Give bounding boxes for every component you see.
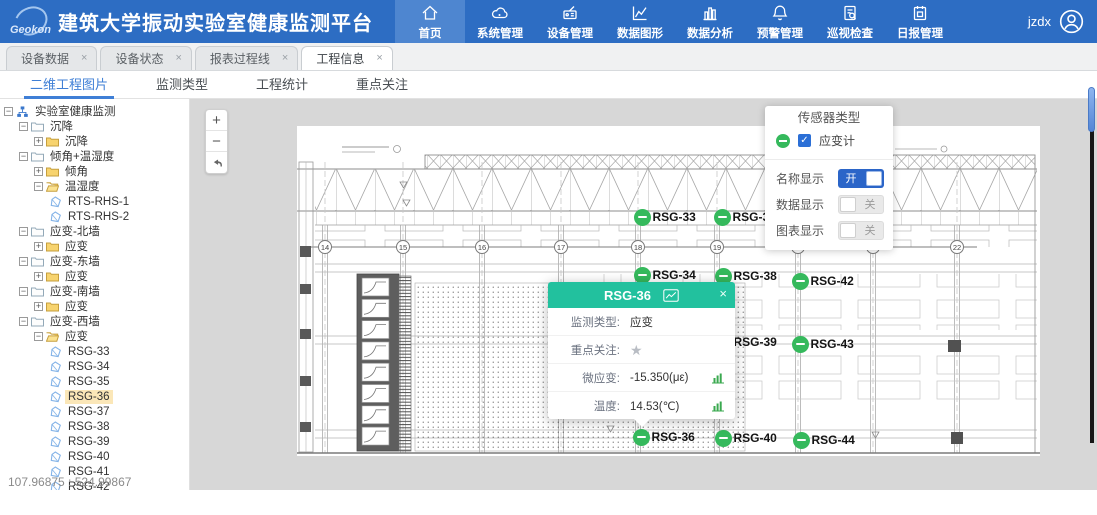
nav-item-数据图形[interactable]: 数据图形 <box>605 0 675 43</box>
folder-outline-icon <box>31 316 44 328</box>
nav-item-日报管理[interactable]: 日报管理 <box>885 0 955 43</box>
device-icon <box>560 3 580 23</box>
folder-outline-icon <box>31 226 44 238</box>
sensor-marker-RSG-44[interactable]: RSG-44 <box>793 432 855 449</box>
toggle-knob[interactable] <box>866 171 882 186</box>
tree-item-label: 倾角 <box>62 165 91 179</box>
sensor-marker-label: RSG-36 <box>652 430 695 444</box>
open-tabs-bar: 设备数据×设备状态×报表过程线×工程信息× <box>0 43 1097 71</box>
folder-outline-icon <box>31 256 44 268</box>
tree-item-RSG-35[interactable]: RSG-35 <box>0 374 189 389</box>
tab-label: 设备数据 <box>21 50 69 67</box>
close-icon[interactable]: × <box>282 53 288 64</box>
collapse-icon[interactable]: − <box>19 257 28 266</box>
tree-item-label: RSG-40 <box>65 450 113 464</box>
popup-row: 重点关注:★ <box>548 335 735 363</box>
sensor-marker-label: RSG-42 <box>811 274 854 288</box>
nav-item-首页[interactable]: 首页 <box>395 0 465 43</box>
tree-item-RTS-RHS-2[interactable]: RTS-RHS-2 <box>0 209 189 224</box>
tab-设备状态[interactable]: 设备状态× <box>100 46 191 70</box>
sensor-marker-RSG-36[interactable]: RSG-36 <box>633 429 695 446</box>
grid-axis-bubble-17: 17 <box>554 240 568 254</box>
sensor-icon <box>49 421 62 433</box>
tab-label: 工程信息 <box>316 50 364 67</box>
toggle-图表显示[interactable]: 关 <box>838 221 884 240</box>
sensor-tree-panel: −实验室健康监测−沉降+沉降−倾角+温湿度+倾角−温湿度RTS-RHS-1RTS… <box>0 99 190 490</box>
toggle-row-图表显示: 图表显示关 <box>765 217 893 243</box>
popup-row-label: 微应变: <box>548 370 620 386</box>
toggle-state-text: 开 <box>838 170 864 186</box>
expand-icon[interactable]: + <box>34 137 43 146</box>
tree-item-RSG-37[interactable]: RSG-37 <box>0 404 189 419</box>
folder-outline-icon <box>31 286 44 298</box>
tree-item-label: 应变 <box>62 270 91 284</box>
nav-label: 日报管理 <box>897 25 943 41</box>
expand-icon[interactable]: + <box>34 302 43 311</box>
collapse-icon[interactable]: − <box>19 287 28 296</box>
tab-工程信息[interactable]: 工程信息× <box>301 46 392 70</box>
sensor-marker-label: RSG-40 <box>734 431 777 445</box>
tree-item-label: RSG-37 <box>65 405 113 419</box>
collapse-icon[interactable]: − <box>19 152 28 161</box>
tree-item-应变-西墙[interactable]: −应变-西墙 <box>0 314 189 329</box>
sensor-icon <box>49 376 62 388</box>
green-minus-circle-icon[interactable] <box>714 209 731 226</box>
green-minus-circle-icon <box>776 134 790 148</box>
tree-item-RSG-33[interactable]: RSG-33 <box>0 344 189 359</box>
folder-icon <box>46 271 59 283</box>
popup-row-label: 温度: <box>548 398 620 414</box>
toggle-row-名称显示: 名称显示开 <box>765 165 893 191</box>
tree-item-label: RSG-35 <box>65 375 113 389</box>
toggle-名称显示[interactable]: 开 <box>838 169 884 188</box>
sensor-icon <box>49 391 62 403</box>
drawing-canvas[interactable]: 141516171819202122 RSG-33RSG-37RSG-41RSG… <box>297 126 1040 456</box>
sensor-icon <box>49 406 62 418</box>
sensor-marker-label: RSG-43 <box>811 337 854 351</box>
zoom-in-button[interactable]: + <box>206 110 227 131</box>
value-chart-icon[interactable] <box>711 400 725 412</box>
tree-item-应变[interactable]: +应变 <box>0 239 189 254</box>
nav-label: 系统管理 <box>477 25 523 41</box>
app-logo: Geokon <box>10 6 52 38</box>
sensor-icon <box>49 436 62 448</box>
sensor-icon <box>49 196 62 208</box>
sensor-marker-RSG-40[interactable]: RSG-40 <box>715 430 777 447</box>
nav-label: 设备管理 <box>547 25 593 41</box>
sensor-marker-label: RSG-39 <box>734 335 777 349</box>
subtab-二维工程图片[interactable]: 二维工程图片 <box>30 71 108 99</box>
user-name: jzdx <box>1028 14 1051 29</box>
nav-label: 数据分析 <box>687 25 733 41</box>
popup-row: 微应变:-15.350(με) <box>548 363 735 391</box>
nav-item-预警管理[interactable]: 预警管理 <box>745 0 815 43</box>
main-nav: 首页系统管理设备管理数据图形数据分析预警管理巡视检查日报管理 <box>395 0 955 43</box>
tree-item-RSG-34[interactable]: RSG-34 <box>0 359 189 374</box>
sensor-marker-RSG-33[interactable]: RSG-33 <box>634 209 696 226</box>
sensor-popup-header: RSG-36 × <box>548 282 735 308</box>
popup-row-value: 14.53(℃) <box>630 399 679 413</box>
data-graph-icon <box>630 3 650 23</box>
value-chart-icon[interactable] <box>711 372 725 384</box>
popup-row: 温度:14.53(℃) <box>548 391 735 419</box>
folder-icon <box>46 166 59 178</box>
toggle-数据显示[interactable]: 关 <box>838 195 884 214</box>
tree-item-label: 应变 <box>62 240 91 254</box>
tree-item-label: 应变 <box>62 300 91 314</box>
page-scrollbar[interactable] <box>1088 87 1095 132</box>
nav-item-设备管理[interactable]: 设备管理 <box>535 0 605 43</box>
strain-gauge-checkbox[interactable]: ✓ <box>798 134 811 147</box>
grid-axis-bubble-22: 22 <box>950 240 964 254</box>
tree-item-label: 应变-北墙 <box>47 225 103 239</box>
sensor-marker-label: RSG-38 <box>734 269 777 283</box>
close-icon[interactable]: × <box>376 53 382 64</box>
app-title: 建筑大学振动实验室健康监测平台 <box>58 7 373 36</box>
tree-item-label: 应变-东墙 <box>47 255 103 269</box>
alert-bell-icon <box>770 3 790 23</box>
tree-item-RSG-36[interactable]: RSG-36 <box>0 389 189 404</box>
green-minus-circle-icon[interactable] <box>792 273 809 290</box>
tab-设备数据[interactable]: 设备数据× <box>6 46 97 70</box>
tree-item-应变[interactable]: +应变 <box>0 269 189 284</box>
subtab-监测类型[interactable]: 监测类型 <box>156 71 208 99</box>
sensor-marker-label: RSG-33 <box>653 210 696 224</box>
nav-label: 预警管理 <box>757 25 803 41</box>
user-avatar-icon[interactable] <box>1058 8 1085 35</box>
sensor-icon <box>49 451 62 463</box>
nav-item-数据分析[interactable]: 数据分析 <box>675 0 745 43</box>
org-icon <box>16 106 29 118</box>
tree-item-应变-南墙[interactable]: −应变-南墙 <box>0 284 189 299</box>
tree-item-RSG-40[interactable]: RSG-40 <box>0 449 189 464</box>
app-page: Geokon 建筑大学振动实验室健康监测平台 首页系统管理设备管理数据图形数据分… <box>0 0 1097 515</box>
green-minus-circle-icon[interactable] <box>634 267 651 284</box>
toggle-row-数据显示: 数据显示关 <box>765 191 893 217</box>
sensor-panel-title: 传感器类型 <box>765 106 893 128</box>
popup-arrow <box>634 419 650 427</box>
nav-item-系统管理[interactable]: 系统管理 <box>465 0 535 43</box>
collapse-icon[interactable]: − <box>19 317 28 326</box>
folder-open-icon <box>46 181 59 193</box>
tree-item-label: 沉降 <box>47 120 76 134</box>
toggle-knob[interactable] <box>840 223 856 238</box>
subtab-重点关注[interactable]: 重点关注 <box>356 71 408 99</box>
sensor-icon <box>49 361 62 373</box>
grid-axis-bubble-14: 14 <box>318 240 332 254</box>
main-area: −实验室健康监测−沉降+沉降−倾角+温湿度+倾角−温湿度RTS-RHS-1RTS… <box>0 99 1097 490</box>
popup-row-value: 应变 <box>630 314 653 330</box>
folder-outline-icon <box>31 151 44 163</box>
sensor-icon <box>49 346 62 358</box>
tree-item-label: RTS-RHS-2 <box>65 210 132 224</box>
sensor-popup-body: 监测类型:应变重点关注:★微应变:-15.350(με)温度:14.53(℃) <box>548 308 735 419</box>
collapse-icon[interactable]: − <box>4 107 13 116</box>
grid-axis-bubble-15: 15 <box>396 240 410 254</box>
folder-icon <box>46 241 59 253</box>
green-minus-circle-icon[interactable] <box>793 432 810 449</box>
logo-text: Geokon <box>10 24 51 36</box>
tree-item-应变-东墙[interactable]: −应变-东墙 <box>0 254 189 269</box>
tree-item-label: RSG-36 <box>65 390 113 404</box>
folder-open-icon <box>46 331 59 343</box>
popup-row-label: 监测类型: <box>548 314 620 330</box>
nav-label: 巡视检查 <box>827 25 873 41</box>
folder-icon <box>46 301 59 313</box>
tree-item-应变[interactable]: −应变 <box>0 329 189 344</box>
nav-label: 首页 <box>419 25 442 41</box>
popup-row-label: 重点关注: <box>548 342 620 358</box>
expand-icon[interactable]: + <box>34 272 43 281</box>
collapse-icon[interactable]: − <box>19 122 28 131</box>
tree-scrollbar[interactable] <box>1090 105 1094 443</box>
undo-arrow-icon[interactable] <box>206 152 227 173</box>
close-icon[interactable]: × <box>81 53 87 64</box>
toggle-state-text: 关 <box>857 196 883 212</box>
folder-icon <box>46 136 59 148</box>
sensor-marker-RSG-34[interactable]: RSG-34 <box>634 267 696 284</box>
tree-item-倾角+温湿度[interactable]: −倾角+温湿度 <box>0 149 189 164</box>
zoom-out-button[interactable]: − <box>206 131 227 152</box>
expand-icon[interactable]: + <box>34 242 43 251</box>
nav-label: 数据图形 <box>617 25 663 41</box>
sensor-marker-label: RSG-44 <box>812 433 855 447</box>
display-toggles: 名称显示开数据显示关图表显示关 <box>765 165 893 243</box>
tree-item-温湿度[interactable]: −温湿度 <box>0 179 189 194</box>
collapse-icon[interactable]: − <box>34 182 43 191</box>
toggle-label: 图表显示 <box>765 222 838 239</box>
tree-item-label: 应变 <box>62 330 91 344</box>
green-minus-circle-icon[interactable] <box>634 209 651 226</box>
system-icon <box>490 3 510 23</box>
toggle-label: 名称显示 <box>765 170 838 187</box>
subtab-工程统计[interactable]: 工程统计 <box>256 71 308 99</box>
grid-axis-bubble-18: 18 <box>631 240 645 254</box>
green-minus-circle-icon[interactable] <box>633 429 650 446</box>
grid-axis-bubble-19: 19 <box>710 240 724 254</box>
cursor-coordinates: 107.96875 : 524.99867 <box>8 475 131 489</box>
tree-item-label: 温湿度 <box>62 180 103 194</box>
sensor-popup-title: RSG-36 <box>604 288 651 303</box>
tree-item-RTS-RHS-1[interactable]: RTS-RHS-1 <box>0 194 189 209</box>
collapse-icon[interactable]: − <box>19 227 28 236</box>
user-box[interactable]: jzdx <box>1028 0 1085 43</box>
nav-item-巡视检查[interactable]: 巡视检查 <box>815 0 885 43</box>
tree-item-实验室健康监测[interactable]: −实验室健康监测 <box>0 104 189 119</box>
tree-item-label: 应变-西墙 <box>47 315 103 329</box>
green-minus-circle-icon[interactable] <box>715 430 732 447</box>
tree-item-RSG-39[interactable]: RSG-39 <box>0 434 189 449</box>
toggle-knob[interactable] <box>840 197 856 212</box>
tree-item-label: RSG-39 <box>65 435 113 449</box>
expand-icon[interactable]: + <box>34 167 43 176</box>
subtab-bar: 二维工程图片监测类型工程统计重点关注 <box>0 71 1097 99</box>
sensor-type-panel: 传感器类型 ✓ 应变计 名称显示开数据显示关图表显示关 <box>765 106 893 250</box>
data-analysis-icon <box>700 3 720 23</box>
toggle-state-text: 关 <box>857 222 883 238</box>
tree-item-倾角[interactable]: +倾角 <box>0 164 189 179</box>
sensor-marker-RSG-42[interactable]: RSG-42 <box>792 273 854 290</box>
daily-report-icon <box>910 3 930 23</box>
tree-item-label: RSG-38 <box>65 420 113 434</box>
map-zoom-controls: + − <box>205 109 228 174</box>
star-icon[interactable]: ★ <box>630 343 643 357</box>
tree-item-沉降[interactable]: +沉降 <box>0 134 189 149</box>
sensor-marker-RSG-43[interactable]: RSG-43 <box>792 336 854 353</box>
folder-outline-icon <box>31 121 44 133</box>
strain-gauge-label: 应变计 <box>819 132 855 149</box>
inspection-icon <box>840 3 860 23</box>
tree-item-label: RSG-33 <box>65 345 113 359</box>
tree-item-label: 倾角+温湿度 <box>47 150 117 164</box>
tab-label: 报表过程线 <box>210 50 270 67</box>
divider <box>765 159 893 160</box>
tree-item-应变-北墙[interactable]: −应变-北墙 <box>0 224 189 239</box>
green-minus-circle-icon[interactable] <box>792 336 809 353</box>
tree-item-label: RTS-RHS-1 <box>65 195 132 209</box>
toggle-label: 数据显示 <box>765 196 838 213</box>
sensor-icon <box>49 211 62 223</box>
tab-报表过程线[interactable]: 报表过程线× <box>195 46 298 70</box>
app-header: Geokon 建筑大学振动实验室健康监测平台 首页系统管理设备管理数据图形数据分… <box>0 0 1097 43</box>
sensor-marker-label: RSG-34 <box>653 268 696 282</box>
close-icon[interactable]: × <box>175 53 181 64</box>
grid-axis-bubble-16: 16 <box>475 240 489 254</box>
sensor-legend-row: ✓ 应变计 <box>765 128 893 156</box>
tree-item-沉降[interactable]: −沉降 <box>0 119 189 134</box>
tree-item-label: RSG-34 <box>65 360 113 374</box>
tab-label: 设备状态 <box>115 50 163 67</box>
tree-item-label: 应变-南墙 <box>47 285 103 299</box>
line-chart-icon[interactable] <box>663 289 679 302</box>
popup-row-value: -15.350(με) <box>630 372 688 384</box>
close-icon[interactable]: × <box>719 287 727 300</box>
tree-item-应变[interactable]: +应变 <box>0 299 189 314</box>
tree-item-label: 沉降 <box>62 135 91 149</box>
popup-row: 监测类型:应变 <box>548 308 735 335</box>
sensor-popup: RSG-36 × 监测类型:应变重点关注:★微应变:-15.350(με)温度:… <box>548 282 735 419</box>
home-icon <box>420 3 440 23</box>
collapse-icon[interactable]: − <box>34 332 43 341</box>
tree-item-label: 实验室健康监测 <box>32 105 119 119</box>
tree-item-RSG-38[interactable]: RSG-38 <box>0 419 189 434</box>
